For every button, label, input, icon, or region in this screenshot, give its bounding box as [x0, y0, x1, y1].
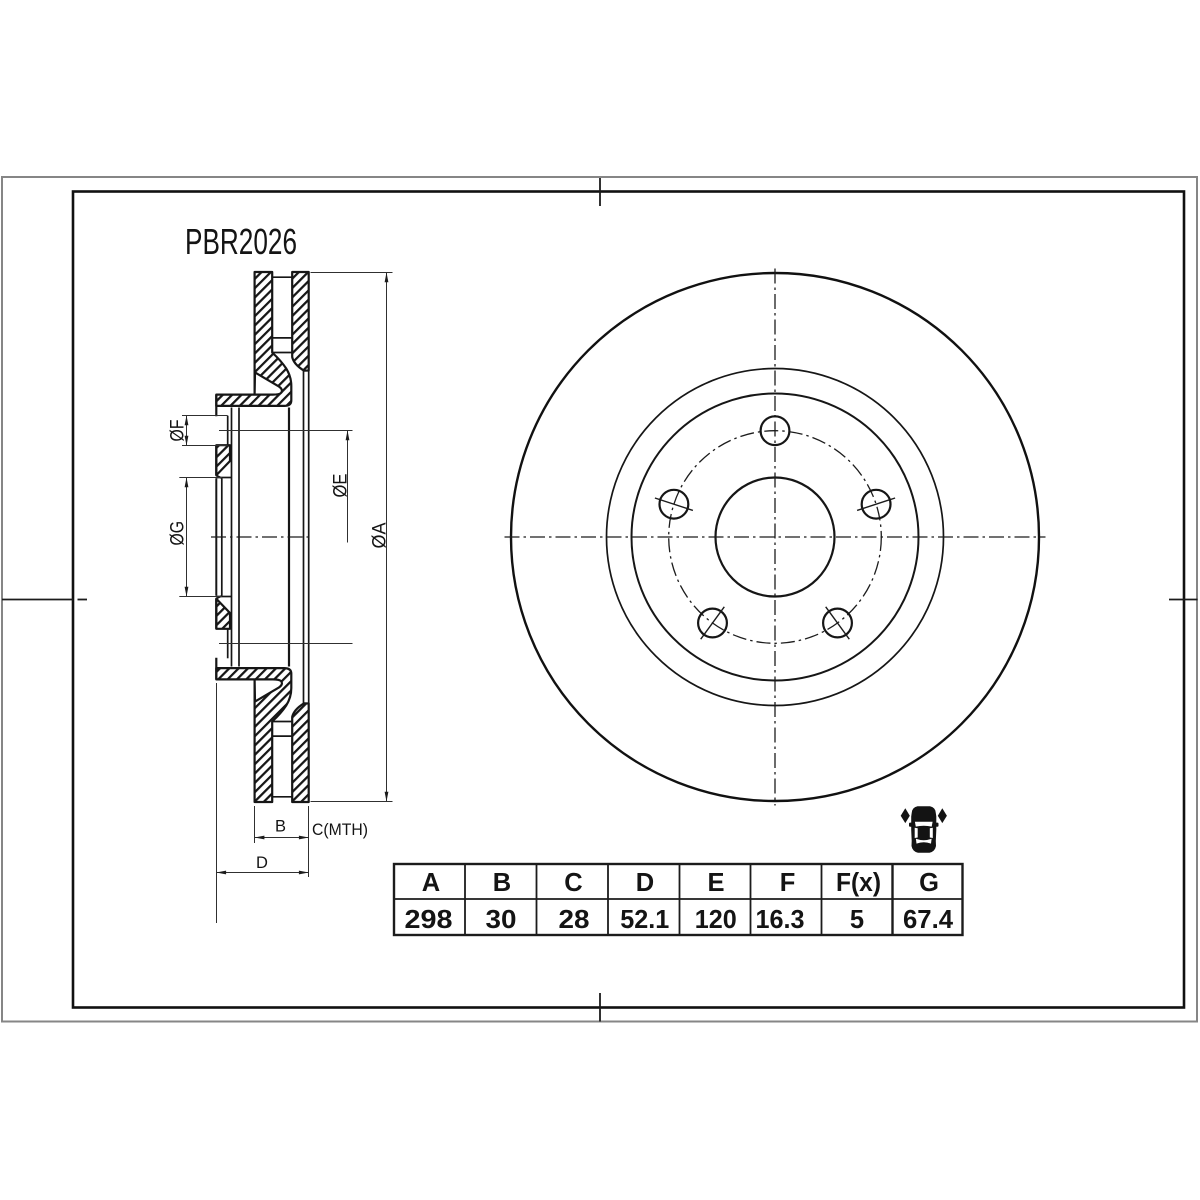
- svg-text:ØA: ØA: [370, 522, 391, 548]
- svg-text:D: D: [256, 854, 268, 872]
- svg-text:E: E: [707, 869, 724, 897]
- svg-text:B: B: [493, 869, 511, 897]
- svg-text:52.1: 52.1: [620, 906, 669, 934]
- svg-text:298: 298: [405, 906, 453, 934]
- svg-text:30: 30: [486, 906, 517, 934]
- svg-text:ØE: ØE: [331, 474, 352, 498]
- svg-text:C: C: [564, 869, 582, 897]
- svg-text:D: D: [636, 869, 654, 897]
- svg-text:A: A: [422, 869, 440, 897]
- svg-text:F: F: [780, 869, 796, 897]
- svg-text:16.3: 16.3: [756, 906, 805, 934]
- svg-text:ØF: ØF: [168, 420, 189, 442]
- svg-text:F(x): F(x): [836, 869, 881, 897]
- svg-text:ØG: ØG: [168, 521, 189, 546]
- svg-text:5: 5: [850, 906, 864, 934]
- svg-text:120: 120: [695, 906, 737, 934]
- svg-text:C(MTH): C(MTH): [312, 820, 368, 839]
- svg-text:28: 28: [559, 906, 590, 934]
- svg-text:B: B: [275, 818, 286, 836]
- svg-text:G: G: [919, 869, 939, 897]
- svg-text:PBR2026: PBR2026: [185, 221, 297, 262]
- svg-text:67.4: 67.4: [903, 906, 954, 934]
